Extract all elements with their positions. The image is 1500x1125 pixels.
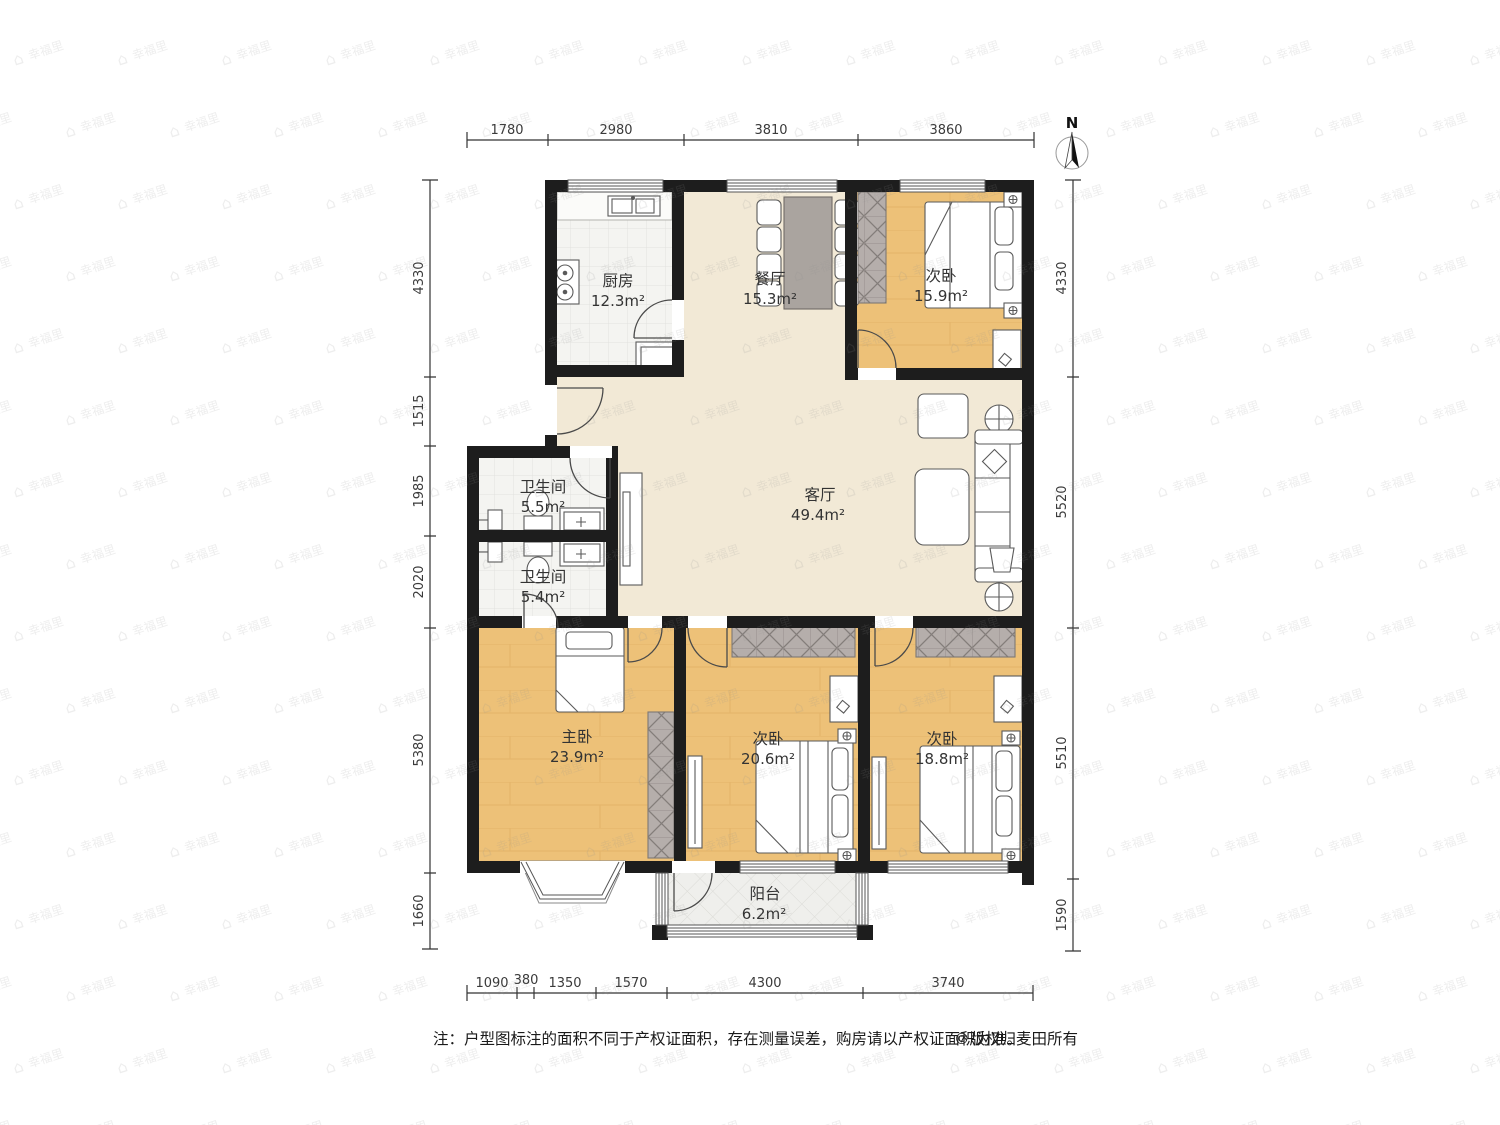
- room-label: 次卧: [926, 730, 957, 748]
- room-label: 厨房: [602, 272, 633, 290]
- dim-label: 5520: [1055, 485, 1070, 518]
- room-label: 次卧: [925, 267, 956, 285]
- dim-label: 1590: [1055, 898, 1070, 931]
- room-area: 23.9m²: [550, 748, 604, 766]
- room-area: 20.6m²: [741, 750, 795, 768]
- wardrobe-icon: [648, 712, 674, 858]
- dim-label: 3860: [929, 123, 962, 138]
- room-label: 餐厅: [754, 270, 785, 288]
- window-balcony-left: [656, 873, 668, 925]
- tv-stand-icon: [872, 757, 886, 849]
- room-area: 5.4m²: [521, 588, 565, 606]
- dim-label: 5510: [1055, 736, 1070, 769]
- wardrobe-icon: [858, 192, 886, 303]
- window-kitchen: [568, 180, 663, 192]
- dim-label: 3740: [931, 976, 964, 991]
- window-bedroom-ne: [900, 180, 985, 192]
- dim-label: 2980: [599, 123, 632, 138]
- desk-icon: [994, 676, 1022, 722]
- room-label: 卫生间: [520, 568, 567, 586]
- wardrobe-icon: [916, 627, 1015, 657]
- room-area: 15.3m²: [743, 290, 797, 308]
- side-table-icon: [985, 583, 1013, 611]
- nightstand-icon: [1004, 303, 1022, 318]
- nightstand-icon: [1002, 731, 1020, 745]
- footer-note: 注：户型图标注的面积不同于产权证面积，存在测量误差，购房请以产权证面积为准。: [433, 1030, 1022, 1048]
- wall-bedrooms-divider: [858, 628, 870, 873]
- wall-bath-right: [606, 446, 618, 628]
- room-label: 主卧: [561, 728, 592, 746]
- desk-icon: [993, 330, 1021, 374]
- room-area: 5.5m²: [521, 498, 565, 516]
- dim-label: 380: [514, 973, 539, 988]
- compass-north-label: N: [1066, 114, 1079, 132]
- floorplan-drawing: 厨房 12.3m² 餐厅 15.3m² 次卧 15.9m² 客厅 49.4m² …: [0, 0, 1500, 1125]
- dim-label: 1515: [412, 394, 427, 427]
- window-bedroom-smid: [740, 861, 835, 873]
- room-label: 卫生间: [520, 478, 567, 496]
- wall-master-divider: [674, 628, 686, 873]
- dim-label: 5380: [412, 733, 427, 766]
- bed-icon: [556, 627, 624, 712]
- dim-label: 1780: [490, 123, 523, 138]
- window-balcony-bottom: [667, 925, 857, 937]
- dim-label: 2020: [412, 565, 427, 598]
- tv-stand-icon: [688, 756, 702, 848]
- room-label: 阳台: [749, 885, 780, 903]
- room-label: 客厅: [804, 486, 835, 504]
- dim-label: 1660: [412, 894, 427, 927]
- nightstand-icon: [1004, 192, 1022, 207]
- dim-label: 1350: [548, 976, 581, 991]
- balcony-post: [857, 925, 873, 940]
- sofa-icon: [975, 430, 1023, 582]
- dim-label: 3810: [754, 123, 787, 138]
- desk-icon: [830, 676, 858, 722]
- wall-right: [1022, 180, 1034, 885]
- room-area: 6.2m²: [742, 905, 786, 923]
- dim-label: 1985: [412, 474, 427, 507]
- cabinet-icon: [918, 394, 968, 438]
- room-area: 49.4m²: [791, 506, 845, 524]
- nightstand-icon: [838, 849, 856, 862]
- balcony-post: [652, 925, 668, 940]
- kitchen-counter-icon: [557, 192, 672, 220]
- shower-unit-icon: [560, 540, 604, 566]
- room-area: 15.9m²: [914, 287, 968, 305]
- wall-kitchen-bottom: [545, 365, 684, 377]
- footer-copyright: ©版权归麦田所有: [954, 1030, 1078, 1048]
- room-area: 18.8m²: [915, 750, 969, 768]
- nightstand-icon: [838, 729, 856, 743]
- room-area: 12.3m²: [591, 292, 645, 310]
- wall-kitchen-divider: [672, 192, 684, 377]
- dim-label: 4300: [748, 976, 781, 991]
- window-balcony-right: [856, 873, 868, 925]
- wall-left-lower: [467, 446, 479, 873]
- tv-cabinet-icon: [620, 473, 642, 585]
- dim-label: 1090: [475, 976, 508, 991]
- room-label: 次卧: [752, 730, 783, 748]
- dim-label: 4330: [1055, 261, 1070, 294]
- wardrobe-icon: [732, 627, 855, 657]
- nightstand-icon: [1002, 849, 1020, 862]
- window-bedroom-se: [888, 861, 1008, 873]
- dim-label: 4330: [412, 261, 427, 294]
- dim-label: 1570: [614, 976, 647, 991]
- wall-dining-divider: [845, 192, 857, 380]
- wall-bath-divider: [467, 530, 618, 542]
- floorplan-page: 厨房 12.3m² 餐厅 15.3m² 次卧 15.9m² 客厅 49.4m² …: [0, 0, 1500, 1125]
- side-table-icon: [985, 405, 1013, 433]
- compass-icon: N: [1056, 114, 1088, 169]
- coffee-table-icon: [915, 469, 969, 545]
- window-dining: [727, 180, 837, 192]
